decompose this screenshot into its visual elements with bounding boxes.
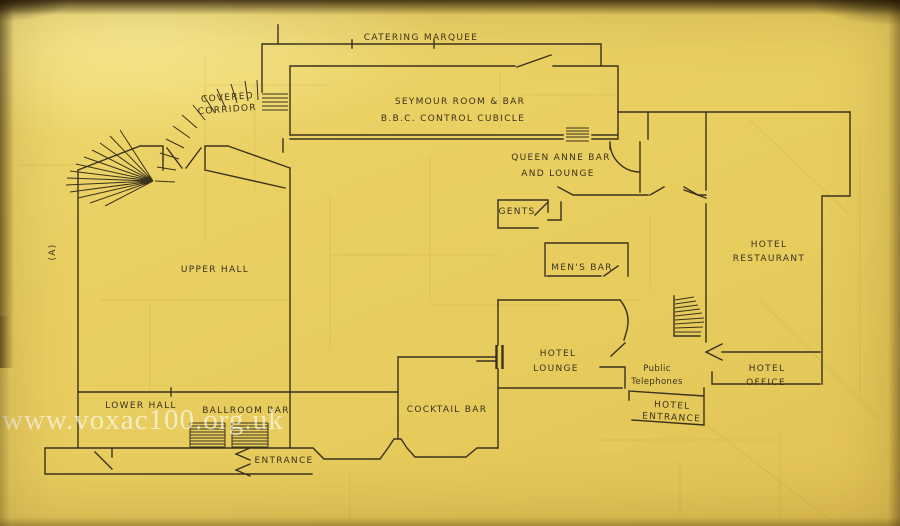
label-lounge-1: HOTEL — [540, 349, 577, 359]
label-gents: GENTS — [498, 207, 535, 217]
photo-edge-left-lower — [0, 316, 10, 526]
photo-edge-right — [888, 0, 900, 526]
label-restaurant-2: RESTAURANT — [733, 254, 805, 264]
label-phones-2: Telephones — [630, 377, 683, 387]
label-upper-hall: UPPER HALL — [181, 265, 249, 275]
label-office-2: OFFICE — [746, 378, 786, 388]
label-bbc-cubicle: B.B.C. CONTROL CUBICLE — [381, 114, 525, 124]
winding-stairs — [675, 297, 704, 332]
label-cocktail-bar: COCKTAIL BAR — [407, 405, 488, 415]
label-catering-marquee: CATERING MARQUEE — [364, 33, 478, 43]
photo-edge-bottom — [0, 517, 900, 526]
background-bleedthrough — [20, 55, 880, 520]
label-restaurant-1: HOTEL — [751, 240, 788, 250]
cocktail-bar-walls — [398, 300, 498, 448]
floor-plan-photo: CATERING MARQUEE COVERED CORRIDOR SEYMOU… — [0, 0, 900, 526]
photo-corner-top-left — [0, 0, 70, 22]
label-queen-anne-1: QUEEN ANNE BAR — [511, 153, 611, 163]
label-mens-bar: MEN'S BAR — [551, 263, 613, 273]
floor-plan: CATERING MARQUEE COVERED CORRIDOR SEYMOU… — [0, 0, 900, 526]
figure-label-a: (A) — [48, 243, 58, 260]
south-facade — [290, 439, 498, 459]
label-hotel-entrance-2: ENTRANCE — [642, 411, 702, 424]
label-queen-anne-2: AND LOUNGE — [521, 169, 594, 179]
label-lounge-2: LOUNGE — [533, 364, 579, 374]
label-covered-corridor-2: CORRIDOR — [198, 103, 258, 117]
door-hardware — [497, 345, 503, 369]
stair-hatching — [190, 128, 704, 447]
seymour-steps — [566, 128, 589, 141]
label-entrance: ENTRANCE — [254, 456, 313, 466]
label-seymour-room: SEYMOUR ROOM & BAR — [395, 97, 525, 107]
photo-edge-top — [0, 0, 900, 15]
watermark: www.voxac100.org.uk — [2, 404, 284, 437]
label-phones-1: Public — [643, 364, 671, 374]
photo-corner-top-right — [810, 0, 900, 26]
label-office-1: HOTEL — [749, 364, 786, 374]
photo-edge-left — [0, 0, 14, 368]
room-labels: CATERING MARQUEE COVERED CORRIDOR SEYMOU… — [48, 33, 805, 466]
lounge-walls — [498, 300, 628, 388]
label-hotel-entrance-1: HOTEL — [654, 400, 691, 412]
